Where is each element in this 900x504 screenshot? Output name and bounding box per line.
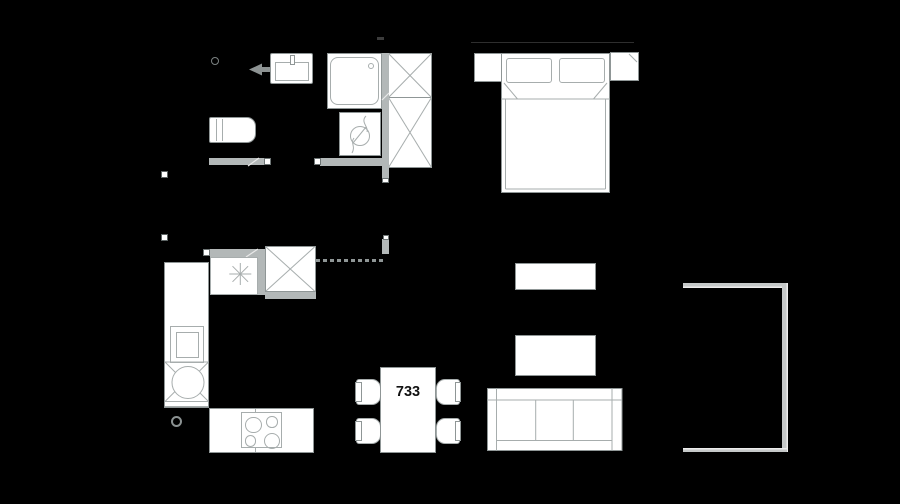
wall-below-cabinet: [265, 292, 316, 299]
chair-backrest: [455, 421, 462, 442]
tall-cabinet: [265, 246, 316, 292]
wall-cap: [382, 178, 389, 183]
sofa: [487, 388, 623, 451]
hob: [241, 412, 283, 448]
wall-bathroom-right: [382, 53, 389, 178]
oven-door: [176, 332, 199, 358]
washbasin: [270, 53, 313, 84]
dining-table: 733: [380, 367, 436, 453]
wall-kitchen-side: [258, 249, 266, 295]
wall-post: [161, 234, 168, 241]
shower-drain-icon: [368, 63, 374, 69]
cabinet-cross-icon: [266, 247, 315, 291]
balcony-railing-top: [683, 283, 787, 288]
bedroom-wall-outline: [471, 42, 634, 43]
pillow: [559, 58, 605, 83]
wall-post: [161, 171, 168, 179]
snowflake-icon: [211, 258, 258, 296]
washbasin-tap-icon: [290, 55, 295, 65]
wall-cap: [314, 158, 321, 166]
burner-icon: [264, 433, 281, 450]
opening-dashed-line: [316, 259, 384, 262]
kitchen-counter-bottom: [209, 408, 314, 453]
wall-tick: [377, 37, 384, 40]
wall-cap: [264, 158, 271, 166]
nightstand-right: [610, 52, 639, 81]
kitchen-counter-left: [164, 262, 210, 408]
floor-plan: 733: [0, 0, 900, 504]
toilet: [209, 117, 256, 143]
fridge: [210, 257, 258, 295]
floor-drain-icon: [171, 416, 182, 427]
oven: [170, 326, 204, 363]
toilet-cistern-line: [216, 119, 217, 141]
apartment-number-label: 733: [381, 384, 435, 400]
wall-bathroom-bottom: [320, 158, 382, 166]
round-sink: [165, 362, 209, 402]
pillow: [506, 58, 552, 83]
counter-edge-line: [165, 406, 209, 407]
tv-stand: [515, 263, 597, 290]
wall-segment: [382, 239, 389, 254]
burner-icon: [245, 435, 257, 447]
wall-cap: [203, 249, 210, 256]
coffee-table: [515, 335, 596, 376]
burner-icon: [245, 417, 262, 434]
washing-machine: [339, 112, 381, 156]
chair-backrest: [355, 382, 362, 403]
burner-icon: [266, 416, 278, 428]
chair-backrest: [455, 382, 462, 403]
chair-backrest: [355, 421, 362, 442]
counter-edge-line: [165, 401, 209, 402]
shower-tray: [327, 53, 383, 109]
wall-cap: [383, 235, 389, 240]
wardrobe: [388, 53, 432, 168]
entrance-arrow-icon: [248, 62, 271, 77]
balcony-railing-bottom: [683, 448, 787, 453]
entrance-door-knob-icon: [211, 57, 219, 65]
balcony-railing-right: [782, 283, 788, 452]
nightstand-left: [474, 53, 502, 82]
wall-toilet: [209, 158, 264, 166]
toilet-cistern-line: [222, 119, 223, 141]
